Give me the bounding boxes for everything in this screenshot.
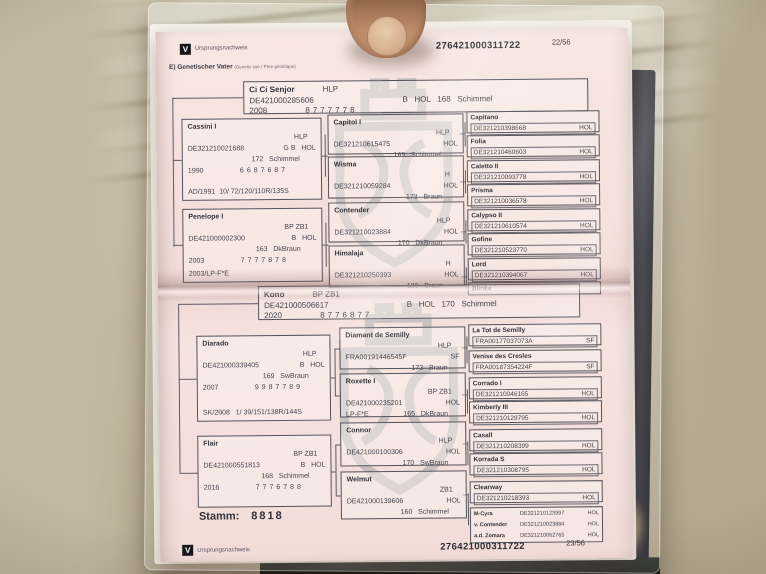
horse-id: DE321210023884 [520, 519, 588, 531]
studbook-tag: BP ZB1 [284, 222, 308, 233]
pedigree-row-calypso: Calypso II DE321210610574HOL [467, 208, 600, 231]
horse-id: DE321210036578 [474, 197, 527, 207]
horse-name: M-Cyra [474, 509, 520, 520]
connector-line [180, 473, 198, 474]
breed: HOL [446, 495, 461, 506]
breed: HOL [588, 508, 599, 519]
pedigree-page: V Ursprungsnachweis 276421000311722 22/5… [156, 28, 633, 562]
performance-note: AD/1991 10/ 72/120/110R/135S [188, 186, 289, 198]
section-note: (Genetic sire / Père génétique) [234, 64, 295, 70]
horse-id: DE321210059284 [334, 181, 391, 192]
sex-breed-height-color: B HOL 168 Schimmel [402, 94, 492, 105]
pedigree-box-diamant: Diamant de Semilly HLP FRA00191446545FSF… [339, 326, 465, 369]
page-number: 22/56 [552, 37, 571, 46]
birth-year: 2016 [204, 482, 256, 493]
horse-id: DE321210023884 [334, 227, 391, 238]
horse-id: DE321210208399 [476, 442, 529, 452]
breed: HOL [446, 446, 461, 457]
horse-name: Ci Ci Senjor [249, 85, 294, 96]
studbook-tag: HLP [323, 84, 339, 95]
breed: HOL [580, 245, 593, 255]
horse-name: Capitol I [333, 117, 361, 128]
horse-id: DE421000139606 [347, 496, 404, 507]
horse-name: Contender [334, 205, 369, 216]
breed: HOL [579, 147, 592, 157]
pedigree-row-corrado: Corrado I DE321210046165HOL [469, 376, 602, 399]
pedigree-row-latot: La Tot de Semilly FRA00177037073ASF [468, 323, 601, 346]
horse-id: DE321210615475 [334, 139, 391, 150]
performance-note: 2003/LP-F*E [189, 268, 229, 279]
studbook-tag: HLP [436, 128, 450, 139]
stamm-value: 8818 [251, 510, 284, 522]
pedigree-row-korrada: Korrada S DE321210308795HOL [469, 452, 602, 475]
birth-year: 2020 [264, 311, 320, 322]
connector-line [467, 389, 468, 413]
connector-line [174, 245, 183, 246]
birth-year: 1990 [188, 165, 240, 176]
horse-id: DE321210308795 [476, 466, 529, 476]
connector-line [172, 98, 174, 247]
pedigree-box-himalaja: Himalaja H DE321210250393HOL 180 Braun [329, 244, 465, 287]
scores: 6687687 [240, 165, 288, 176]
height-color: 160 Schimmel [401, 506, 461, 518]
horse-id: DE421000551813 [203, 460, 260, 471]
breed: HOL [579, 123, 592, 133]
document-brand: Ursprungsnachweis [195, 45, 248, 51]
document-number: 276421000311722 [436, 40, 521, 52]
height-color: 172 Schimmel [252, 154, 300, 165]
horse-id: DE321210394067 [475, 271, 528, 281]
breed: HOL [582, 413, 595, 423]
connector-line [178, 303, 258, 305]
breed: HOL [443, 138, 458, 149]
horse-id: DE421000100306 [346, 447, 403, 458]
sex-breed: G B HOL [283, 143, 315, 154]
breed: SF [586, 362, 594, 372]
horse-name: Diamant de Semilly [345, 330, 409, 342]
stamm-label: Stamm: [199, 510, 239, 522]
pedigree-row-kimberly: Kimberly III DE321210129795HOL [469, 400, 602, 423]
horse-id: DE321210129795 [476, 414, 529, 424]
breed: HOL [582, 441, 595, 451]
connector-line [173, 160, 182, 161]
breed: HOL [444, 269, 459, 280]
breed: HOL [444, 180, 459, 191]
birth-year: 2007 [203, 382, 255, 393]
breed: HOL [580, 196, 593, 206]
pedigree-row-clearway: Clearway DE321210218393HOL [470, 480, 603, 503]
horse-name: Roxette I [346, 376, 376, 387]
page-number: 23/56 [566, 538, 585, 547]
breed: HOL [580, 221, 593, 231]
studbook-tag: HLP [439, 435, 453, 446]
height-color: 165 DkBraun [403, 408, 460, 419]
connector-line [332, 472, 336, 473]
pedigree-box-diarado: Diarado HLP DE421000339405B HOL 169 SwBr… [196, 335, 331, 422]
horse-name: Flair [203, 439, 218, 450]
document-brand: Ursprungsnachweis [197, 547, 250, 553]
section-title: E) Genetischer Vater [169, 63, 233, 71]
sex-breed-height-color: B HOL 170 Schimmel [407, 299, 497, 310]
breed: HOL [588, 519, 599, 530]
breed: HOL [582, 465, 595, 475]
verband-logo: V [180, 44, 191, 55]
studbook-tag: ZB1 [440, 484, 453, 495]
pedigree-box-connor: Connor HLP DE421000100306HOL 170 SwBraun [340, 421, 466, 466]
studbook-tag: HLP [437, 216, 451, 227]
horse-id: DE321210250393 [335, 270, 392, 281]
photo-scene: V Ursprungsnachweis 276421000311722 22/5… [0, 0, 766, 574]
pedigree-box-roxette: Roxette I BP ZB1 DE421000235201HOL LP-F*… [340, 372, 466, 417]
studbook-tag: HLP [438, 341, 452, 352]
pedigree-row-prisma: Prisma DE321210036578HOL [467, 183, 600, 206]
horse-name: Wisma [334, 159, 357, 170]
birth-year: 2003 [189, 255, 241, 266]
studbook-tag: HLP [303, 349, 317, 360]
pedigree-row-folia: Folia DE321210460603HOL [467, 134, 600, 157]
studbook-tag: H [446, 259, 451, 270]
birth-year: 2008 [249, 106, 305, 117]
horse-id: FRA00177037073A [475, 337, 532, 347]
horse-id: FRA00187354224F [476, 363, 533, 373]
breed: HOL [588, 530, 599, 541]
studbook-tag: BP ZB1 [312, 289, 340, 300]
breed: HOL [445, 397, 460, 408]
horse-id: DE421000235201 [346, 398, 403, 409]
stamm-line: Stamm:8818 [199, 510, 284, 523]
horse-name: Himalaja [335, 248, 364, 259]
pedigree-box-penelope: Penelope I BP ZB1 DE421000002300B HOL 16… [182, 208, 323, 283]
breed: HOL [580, 172, 593, 182]
pedigree-box-contender: Contender HLP DE321210023884HOL 170 DkBr… [328, 201, 464, 242]
pedigree-box-wisma: Wisma H DE321210059284HOL 173 Braun [328, 155, 464, 198]
height-color: 170 SwBraun [403, 457, 461, 469]
horse-name: Welmut [347, 474, 372, 485]
horse-id: DE321210610574 [474, 222, 527, 232]
pedigree-box-dam-root: KonoBP ZB1 DE421000506617B HOL 170 Schim… [258, 283, 580, 320]
breed: SF [586, 336, 594, 346]
horse-id: DE321210021688 [188, 143, 245, 154]
connector-line [179, 379, 197, 380]
height-color: 169 SwBraun [263, 371, 309, 382]
pedigree-row-lord: Lord DE321210394067HOL [468, 257, 601, 280]
horse-name: Kono [264, 290, 285, 301]
horse-id: DE421000339405 [203, 360, 260, 371]
breed: HOL [581, 389, 594, 399]
scores: 7776788 [256, 482, 304, 493]
scores: 7777878 [241, 255, 289, 266]
horse-id: DE321210218393 [477, 494, 530, 504]
breed: SF [451, 351, 460, 362]
studbook-tag: BP ZB1 [428, 386, 452, 397]
scores: 9987789 [255, 382, 303, 393]
pedigree-row-venise: Venise des Cresles FRA00187354224FSF [468, 349, 601, 372]
height-color: 168 Schimmel [261, 471, 309, 482]
horse-name: Penelope I [188, 211, 223, 222]
horse-id: DE321210523770 [475, 246, 528, 256]
breed: HOL [580, 270, 593, 280]
sex-breed: B HOL [300, 360, 325, 371]
scores: 8776877 [320, 310, 372, 321]
thumbnail-nail [367, 16, 407, 56]
horse-id: FRA00191446545F [345, 352, 406, 364]
horse-id: DE321210046165 [476, 390, 529, 400]
studbook-tag: BP ZB1 [293, 449, 317, 460]
horse-id: DE421000002300 [188, 233, 245, 244]
horse-name: Connor [346, 425, 371, 436]
pedigree-row-casall: Casall DE321210208399HOL [469, 428, 602, 451]
sex-breed: B HOL [292, 233, 317, 244]
horse-id: DE321210398668 [474, 124, 527, 134]
horse-id: DE321210093778 [474, 173, 527, 183]
connector-line [172, 97, 243, 99]
pedigree-row-caletto: Caletto II DE321210093778HOL [467, 159, 600, 182]
horse-name: Cassini I [187, 122, 216, 133]
connector-line [331, 378, 335, 379]
breed: HOL [582, 493, 595, 503]
connector-line [178, 304, 180, 473]
studbook-tag: HLP [294, 132, 308, 143]
sire-of-dam: v. Contender [474, 520, 520, 531]
pedigree-box-sire-root: Ci Ci SenjorHLP DE421000285606B HOL 168 … [243, 78, 588, 114]
performance-note: LP-F*E [346, 409, 369, 420]
sex-breed: B HOL [301, 460, 326, 471]
horse-id: DE321210123997 [520, 508, 588, 520]
performance-note: SK/2008 1/ 39/151/138R/144S [203, 407, 302, 419]
pedigree-row-capitano: Capitano DE321210398668HOL [466, 110, 599, 133]
horse-id: DE321210460603 [474, 148, 527, 158]
pedigree-box-capitol: Capitol I HLP DE321210615475HOL 169 Schi… [327, 113, 463, 154]
height-color: 163 DkBraun [256, 244, 301, 255]
verband-logo: V [182, 545, 193, 556]
pedigree-box-welmut: Welmut ZB1 DE421000139606HOL 160 Schimme… [341, 470, 467, 519]
studbook-tag: H [445, 170, 450, 181]
pedigree-box-flair: Flair BP ZB1 DE421000551813B HOL 168 Sch… [197, 435, 332, 508]
horse-name: Diarado [202, 338, 228, 349]
breed: HOL [444, 226, 459, 237]
pedigree-box-cassini: Cassini I HLP DE321210021688G B HOL 172 … [181, 118, 322, 201]
section-label: E) Genetischer Vater (Genetic sire / Pèr… [169, 63, 296, 71]
document-number: 276421000311722 [440, 541, 525, 553]
connector-line [467, 441, 468, 465]
pedigree-row-gofine: Gofine DE321210523770HOL [467, 232, 600, 255]
